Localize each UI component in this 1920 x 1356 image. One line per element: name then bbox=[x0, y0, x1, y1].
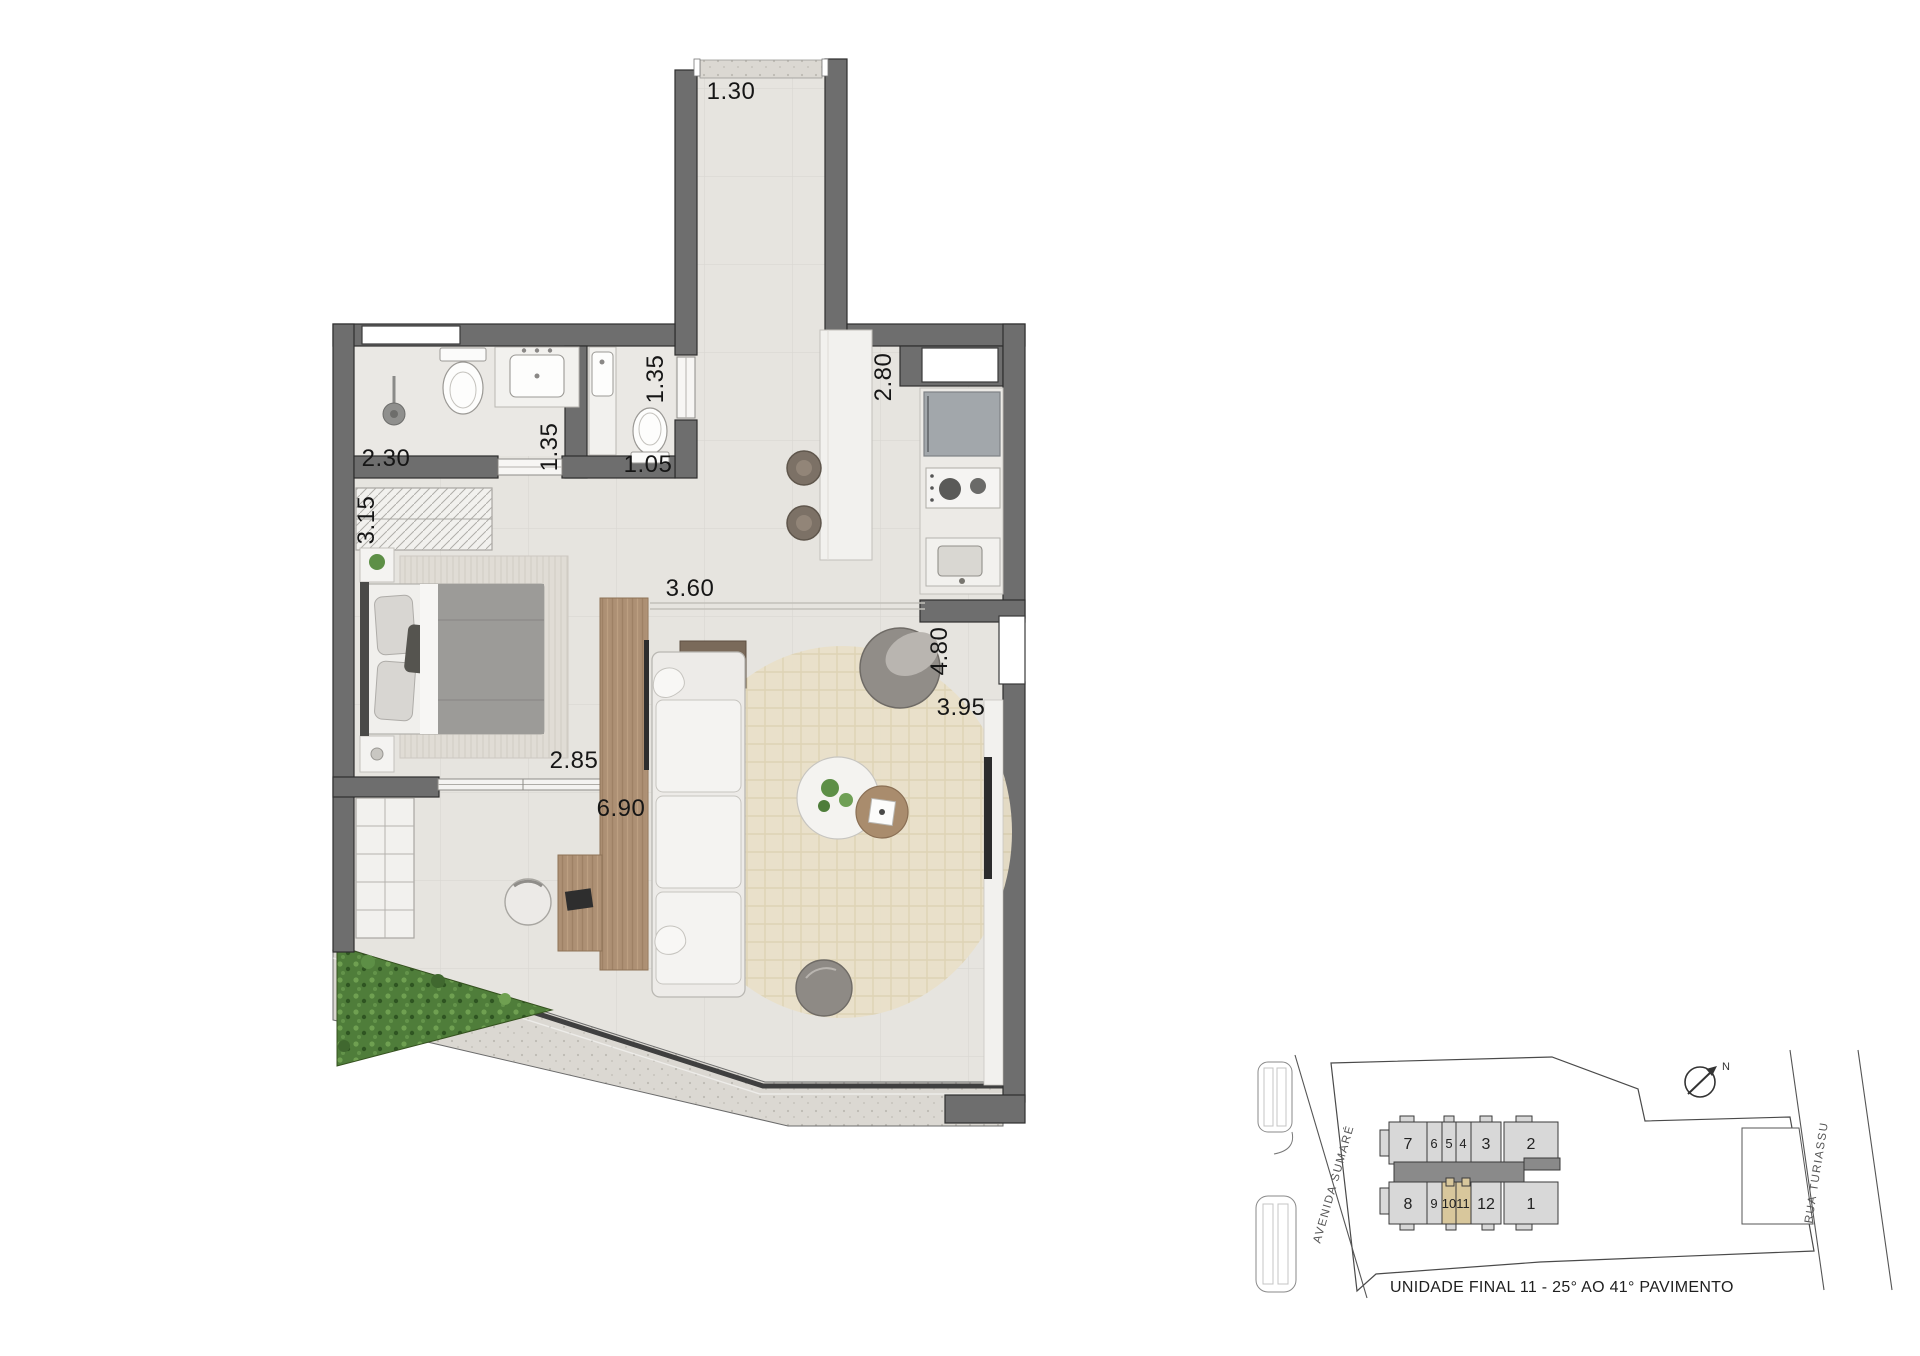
svg-text:2: 2 bbox=[1527, 1136, 1536, 1153]
laptop-icon bbox=[565, 888, 593, 910]
svg-text:12: 12 bbox=[1477, 1196, 1495, 1213]
street-right: RUA TURIASSU bbox=[1742, 1050, 1892, 1290]
keyplan-caption: UNIDADE FINAL 11 - 25° AO 41° PAVIMENTO bbox=[1390, 1279, 1734, 1296]
cooktop-icon bbox=[926, 468, 1000, 508]
entry-door bbox=[694, 59, 828, 78]
plan-sheet: 1.30 2.30 1.35 3.15 1.35 1.05 2.80 3.60 … bbox=[0, 0, 1920, 1356]
floor-plan: 1.30 2.30 1.35 3.15 1.35 1.05 2.80 3.60 … bbox=[333, 59, 1025, 1126]
wall-tv-icon bbox=[984, 757, 992, 879]
bed-icon bbox=[360, 582, 544, 736]
dim-hall-span: 3.60 bbox=[666, 575, 715, 602]
dim-living-window: 4.80 bbox=[926, 627, 953, 676]
dim-closet-width: 3.15 bbox=[353, 496, 380, 545]
dim-bath-depth: 1.35 bbox=[536, 423, 563, 472]
dim-bedroom-opening: 2.85 bbox=[550, 747, 599, 774]
svg-text:9: 9 bbox=[1430, 1196, 1437, 1211]
desk-chair-icon bbox=[505, 879, 551, 925]
dim-bath-width: 2.30 bbox=[362, 445, 411, 472]
side-table-icon bbox=[856, 786, 908, 838]
key-plan: AVENIDA SUMARÉ RUA TURIASSU bbox=[1256, 1050, 1892, 1298]
svg-text:5: 5 bbox=[1445, 1136, 1452, 1151]
dim-lavabo-width: 1.05 bbox=[624, 451, 673, 478]
sink-icon bbox=[495, 347, 579, 407]
svg-text:10: 10 bbox=[1442, 1196, 1456, 1211]
north-label: N bbox=[1722, 1061, 1730, 1073]
bedroom bbox=[360, 548, 568, 772]
svg-text:8: 8 bbox=[1404, 1196, 1413, 1213]
svg-text:1: 1 bbox=[1527, 1196, 1536, 1213]
dim-lavabo-door: 1.35 bbox=[642, 355, 669, 404]
bedroom-sliding-door bbox=[438, 779, 608, 790]
fridge-icon bbox=[924, 392, 1000, 456]
living-window bbox=[999, 616, 1025, 684]
kitchen-window bbox=[922, 348, 998, 382]
lavabo-door bbox=[677, 357, 695, 418]
dim-living-width: 3.95 bbox=[937, 694, 986, 721]
tv-icon bbox=[644, 640, 649, 770]
svg-text:4: 4 bbox=[1459, 1136, 1466, 1151]
dim-living-length: 6.90 bbox=[597, 795, 646, 822]
neighbor-pad bbox=[1742, 1128, 1813, 1224]
dim-entry-width: 1.30 bbox=[707, 78, 756, 105]
svg-text:6: 6 bbox=[1430, 1136, 1437, 1151]
dim-kitchen-depth: 2.80 bbox=[870, 353, 897, 402]
lavabo-sink-icon bbox=[589, 347, 616, 455]
north-arrow-icon: N bbox=[1685, 1061, 1730, 1097]
svg-text:3: 3 bbox=[1482, 1136, 1491, 1153]
building-core bbox=[1394, 1162, 1524, 1182]
office-wardrobe-icon bbox=[356, 798, 414, 938]
sofa-icon bbox=[652, 652, 745, 997]
svg-text:7: 7 bbox=[1404, 1136, 1413, 1153]
svg-text:11: 11 bbox=[1456, 1196, 1470, 1211]
kitchen-sink-icon bbox=[926, 538, 1000, 586]
toilet-icon bbox=[440, 348, 486, 414]
bath-window bbox=[362, 326, 460, 344]
